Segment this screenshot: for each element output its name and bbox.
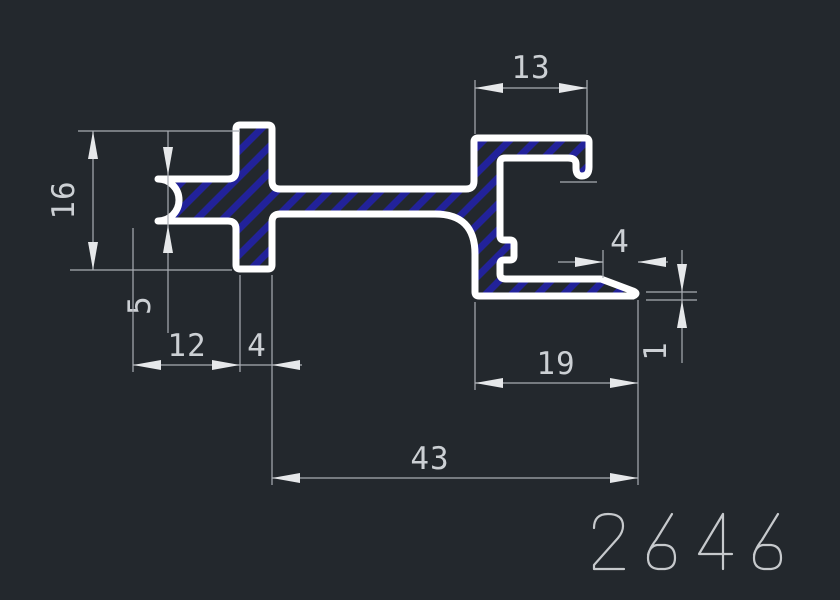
dimension-text: 4 [247, 328, 267, 364]
arrowhead [133, 360, 161, 370]
dimension-tip-thickness: 1 [638, 250, 697, 363]
cad-drawing: 13 16 5 12 4 4 [0, 0, 840, 600]
arrowhead [610, 473, 638, 483]
arrowhead [163, 147, 173, 175]
arrowhead [163, 225, 173, 253]
cad-drawing-canvas[interactable]: 13 16 5 12 4 4 [0, 0, 840, 600]
dimension-text: 5 [122, 295, 158, 315]
arrowhead [610, 378, 638, 388]
dimension-tip-taper: 4 [558, 224, 668, 278]
dimension-text: 1 [638, 341, 674, 361]
arrowhead [475, 378, 503, 388]
arrowhead [677, 300, 687, 328]
arrowhead [88, 242, 98, 270]
dimension-lip-thickness: 5 [122, 131, 173, 333]
part-number: 2646 [594, 514, 781, 569]
dimension-lip-length: 12 4 [133, 228, 302, 485]
dimension-text: 43 [410, 441, 449, 477]
dimension-overall-length: 43 [272, 441, 638, 483]
dimension-flange-length: 19 [475, 300, 638, 485]
arrowhead [212, 360, 240, 370]
arrowhead [272, 473, 300, 483]
arrowhead [638, 257, 666, 267]
arrowhead [88, 131, 98, 159]
arrowhead [272, 360, 300, 370]
dimension-text: 12 [167, 328, 206, 364]
arrowhead [475, 83, 503, 93]
dimension-text: 19 [536, 346, 575, 382]
arrowhead [559, 83, 587, 93]
arrowhead [677, 264, 687, 292]
dimension-hook-width: 13 [475, 50, 587, 134]
dimension-text: 16 [46, 180, 82, 219]
arrowhead [575, 257, 603, 267]
dimension-text: 13 [511, 50, 550, 86]
dimension-text: 4 [610, 224, 630, 260]
